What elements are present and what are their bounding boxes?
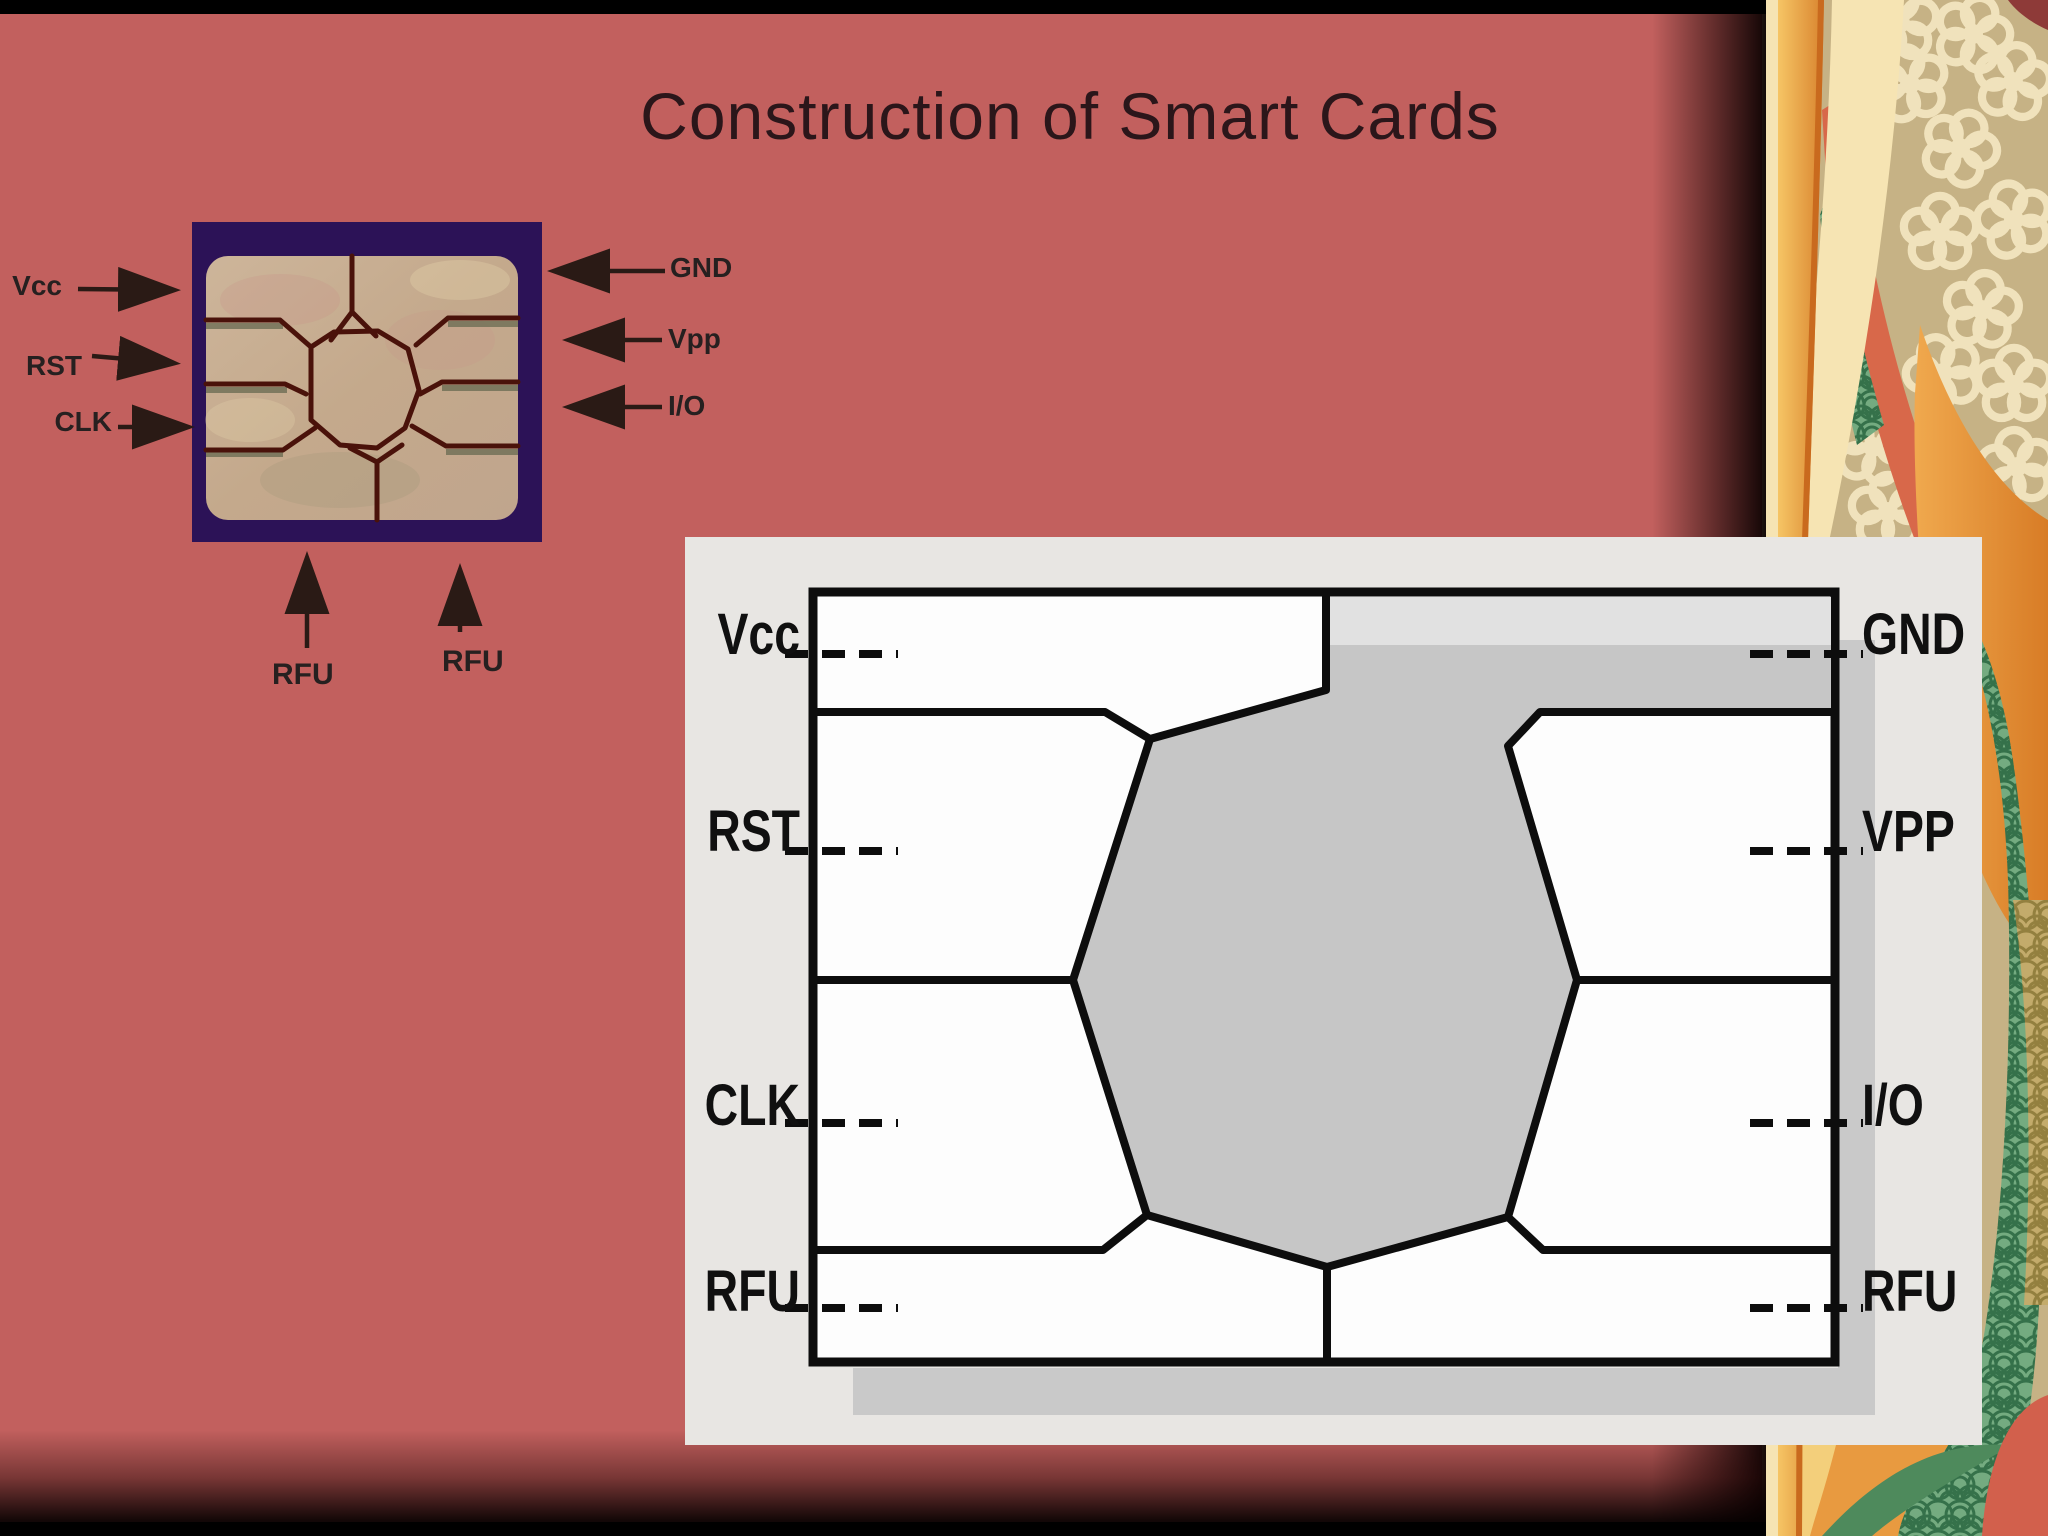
photo-label-vpp: Vpp <box>668 323 721 355</box>
contact-diagram-panel <box>685 537 1982 1445</box>
photo-label-rfu-1: RFU <box>272 658 334 692</box>
contact-diagram <box>685 537 1982 1445</box>
photo-label-io: I/O <box>668 390 705 422</box>
slide: Construction of Smart Cards <box>0 0 2048 1536</box>
chip-photo <box>0 150 760 710</box>
photo-label-clk: CLK <box>0 406 112 438</box>
diagram-label-io: I/O <box>1862 1077 2022 1135</box>
diagram-label-vcc: Vcc <box>672 606 800 664</box>
diagram-label-gnd: GND <box>1862 606 2022 664</box>
diagram-label-rfu-right: RFU <box>1862 1263 2022 1321</box>
photo-label-gnd: GND <box>670 252 732 284</box>
edge-shadow-bottom <box>0 1430 1766 1536</box>
diagram-label-vpp: VPP <box>1862 803 2022 861</box>
photo-label-vcc: Vcc <box>0 270 62 302</box>
diagram-label-rfu-left: RFU <box>672 1263 800 1321</box>
top-frame-bar <box>0 0 1766 14</box>
diagram-shadow-bottom <box>853 1368 1875 1415</box>
gnd-pad-shading <box>1326 597 1831 645</box>
bottom-frame-bar <box>0 1522 1766 1536</box>
diagram-label-rst: RST <box>672 803 800 861</box>
slide-title: Construction of Smart Cards <box>430 78 1710 154</box>
photo-label-rst: RST <box>0 350 82 382</box>
photo-label-rfu-2: RFU <box>442 645 504 679</box>
diagram-label-clk: CLK <box>672 1077 800 1135</box>
